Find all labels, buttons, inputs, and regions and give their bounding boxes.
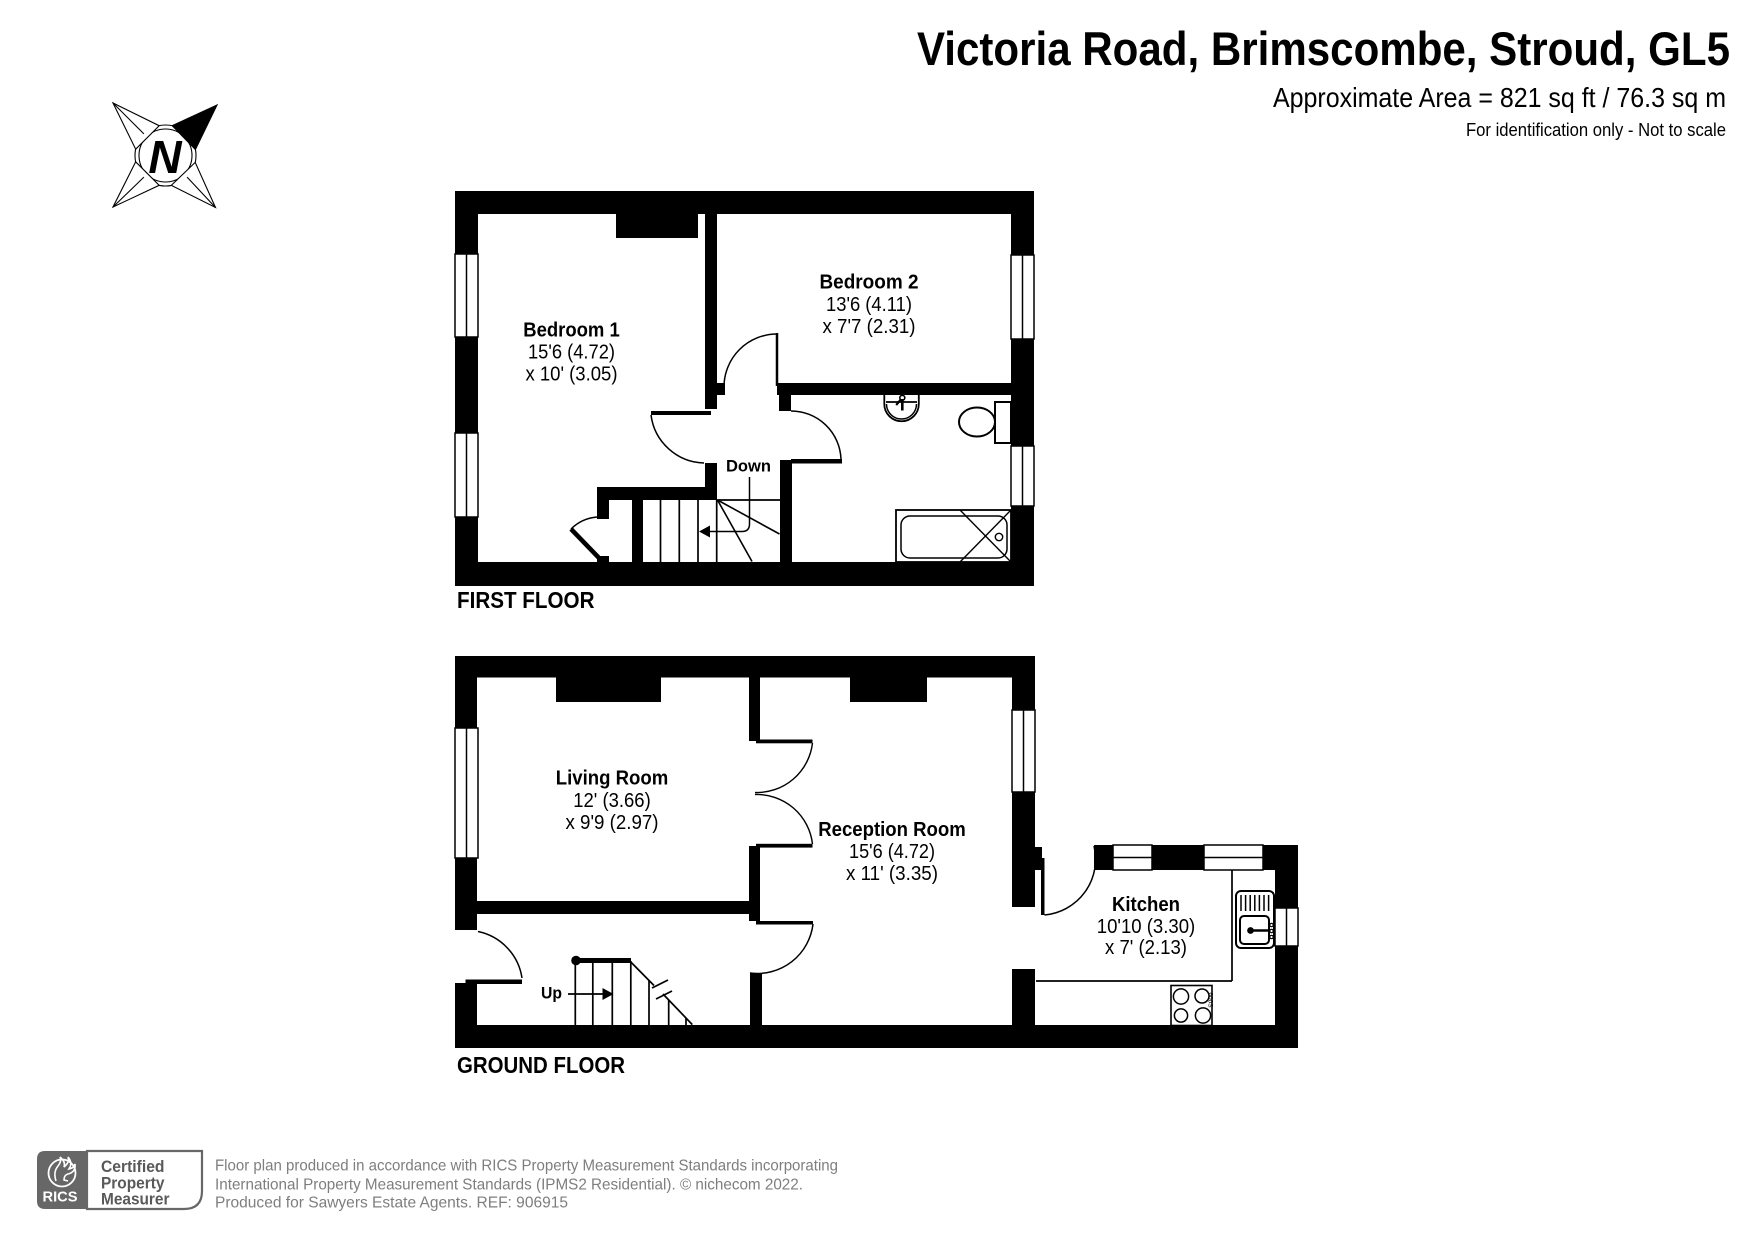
svg-text:Floor plan produced in accorda: Floor plan produced in accordance with R… xyxy=(215,1158,838,1175)
svg-text:x 11' (3.35): x 11' (3.35) xyxy=(846,863,938,885)
svg-text:12' (3.66): 12' (3.66) xyxy=(573,790,651,812)
svg-text:15'6 (4.72): 15'6 (4.72) xyxy=(528,342,615,364)
svg-text:N: N xyxy=(148,131,182,183)
svg-text:13'6 (4.11): 13'6 (4.11) xyxy=(826,294,912,316)
svg-text:x 9'9 (2.97): x 9'9 (2.97) xyxy=(566,812,659,834)
svg-text:x 7' (2.13): x 7' (2.13) xyxy=(1105,937,1187,959)
svg-text:Up: Up xyxy=(541,985,562,1003)
svg-text:Bedroom 1: Bedroom 1 xyxy=(523,320,620,342)
svg-text:FIRST FLOOR: FIRST FLOOR xyxy=(457,587,595,613)
svg-text:600S: 600S xyxy=(1207,992,1214,1008)
svg-text:x 10' (3.05): x 10' (3.05) xyxy=(526,364,618,386)
svg-text:x 7'7 (2.31): x 7'7 (2.31) xyxy=(823,316,916,338)
svg-text:International Property Measure: International Property Measurement Stand… xyxy=(215,1177,803,1194)
svg-text:RICS: RICS xyxy=(43,1189,78,1206)
svg-text:Victoria Road, Brimscombe, Str: Victoria Road, Brimscombe, Stroud, GL5 xyxy=(917,22,1730,75)
svg-text:Kitchen: Kitchen xyxy=(1112,894,1180,916)
svg-text:Reception Room: Reception Room xyxy=(818,819,966,841)
svg-text:Measurer: Measurer xyxy=(101,1190,170,1209)
svg-text:For identification only - Not: For identification only - Not to scale xyxy=(1466,119,1726,140)
svg-text:Approximate Area = 821 sq ft /: Approximate Area = 821 sq ft / 76.3 sq m xyxy=(1273,82,1726,113)
svg-text:Produced for Sawyers Estate Ag: Produced for Sawyers Estate Agents. REF:… xyxy=(215,1195,568,1212)
svg-text:Bedroom 2: Bedroom 2 xyxy=(820,272,919,294)
svg-text:15'6 (4.72): 15'6 (4.72) xyxy=(849,841,935,863)
svg-text:GROUND FLOOR: GROUND FLOOR xyxy=(457,1052,625,1078)
svg-text:Living Room: Living Room xyxy=(556,768,669,790)
svg-text:Down: Down xyxy=(726,458,771,476)
svg-text:10'10 (3.30): 10'10 (3.30) xyxy=(1097,916,1196,938)
